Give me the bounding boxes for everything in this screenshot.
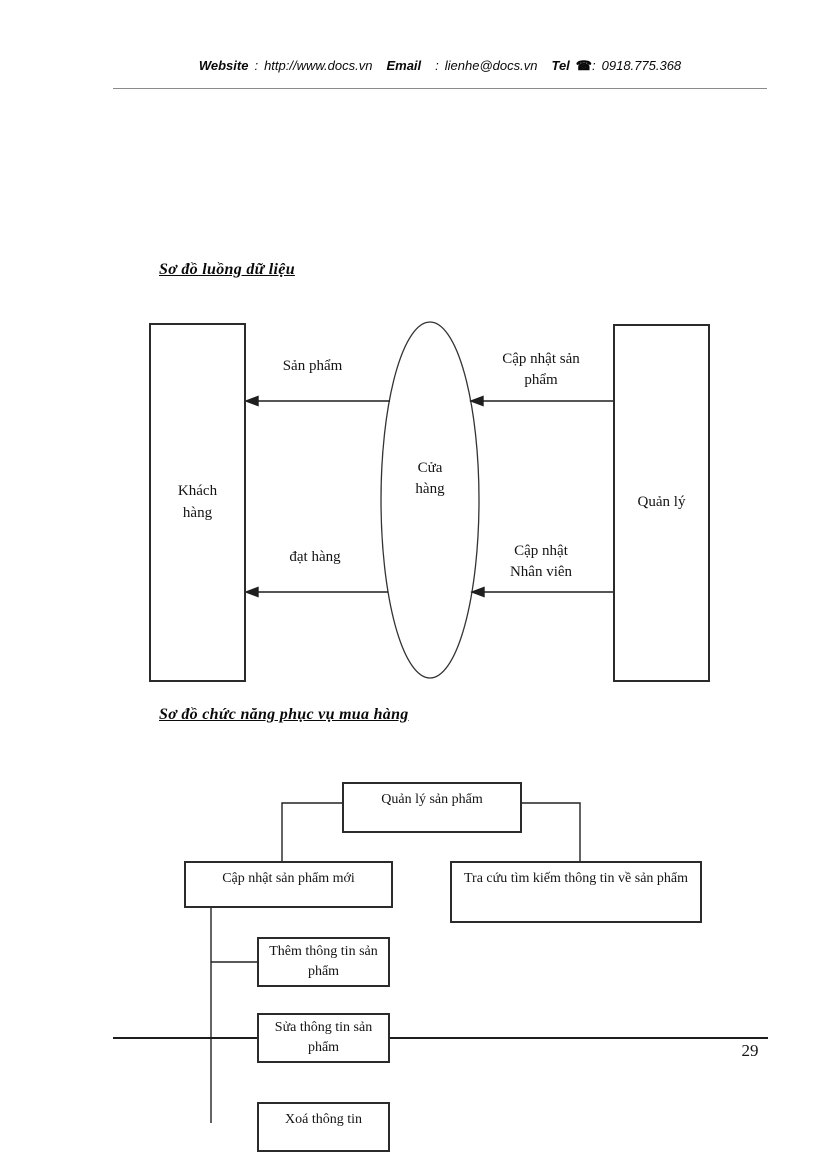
arrowhead-dat-hang <box>246 588 258 597</box>
arrowhead-san-pham <box>246 397 258 406</box>
flow-label-dat-hang: đạt hàng <box>260 547 370 568</box>
entity-customer-box: Khách hàng <box>149 323 246 682</box>
entity-customer-label: Khách hàng <box>167 481 229 525</box>
func-search-box: Tra cứu tìm kiếm thông tin về sản phẩm <box>450 861 702 923</box>
func-add-box: Thêm thông tin sản phẩm <box>257 937 390 987</box>
flow-label-san-pham: Sản phẩm <box>255 356 370 377</box>
func-edit-label: Sửa thông tin sản phẩm <box>269 1018 379 1059</box>
func-update-box: Cập nhật sản phẩm mới <box>184 861 393 908</box>
func-search-label: Tra cứu tìm kiếm thông tin về sản phẩm <box>456 869 696 889</box>
func-delete-label: Xoá thông tin <box>269 1110 379 1130</box>
arrowhead-cap-nhat-san-pham <box>471 397 483 406</box>
func-delete-box: Xoá thông tin <box>257 1102 390 1152</box>
connector-root-left <box>282 803 342 861</box>
flow-label-cap-nhat-nhan-vien: Cập nhật Nhân viên <box>481 541 601 583</box>
arrowhead-cap-nhat-nhan-vien <box>472 588 484 597</box>
store-ellipse-label: Cửa hàng <box>380 458 480 500</box>
func-update-label: Cập nhật sản phẩm mới <box>222 871 355 886</box>
connector-root-right <box>522 803 580 861</box>
func-add-label: Thêm thông tin sản phẩm <box>269 942 379 983</box>
entity-manager-label: Quản lý <box>638 492 686 514</box>
func-root-box: Quản lý sản phẩm <box>342 782 522 833</box>
func-edit-box: Sửa thông tin sản phẩm <box>257 1013 390 1063</box>
entity-manager-box: Quản lý <box>613 324 710 682</box>
document-page: { "header": { "website_label": "Website"… <box>0 0 816 1123</box>
func-root-label: Quản lý sản phẩm <box>381 792 482 807</box>
store-ellipse <box>381 322 479 678</box>
flow-label-cap-nhat-san-pham: Cập nhật sản phẩm <box>481 349 601 391</box>
